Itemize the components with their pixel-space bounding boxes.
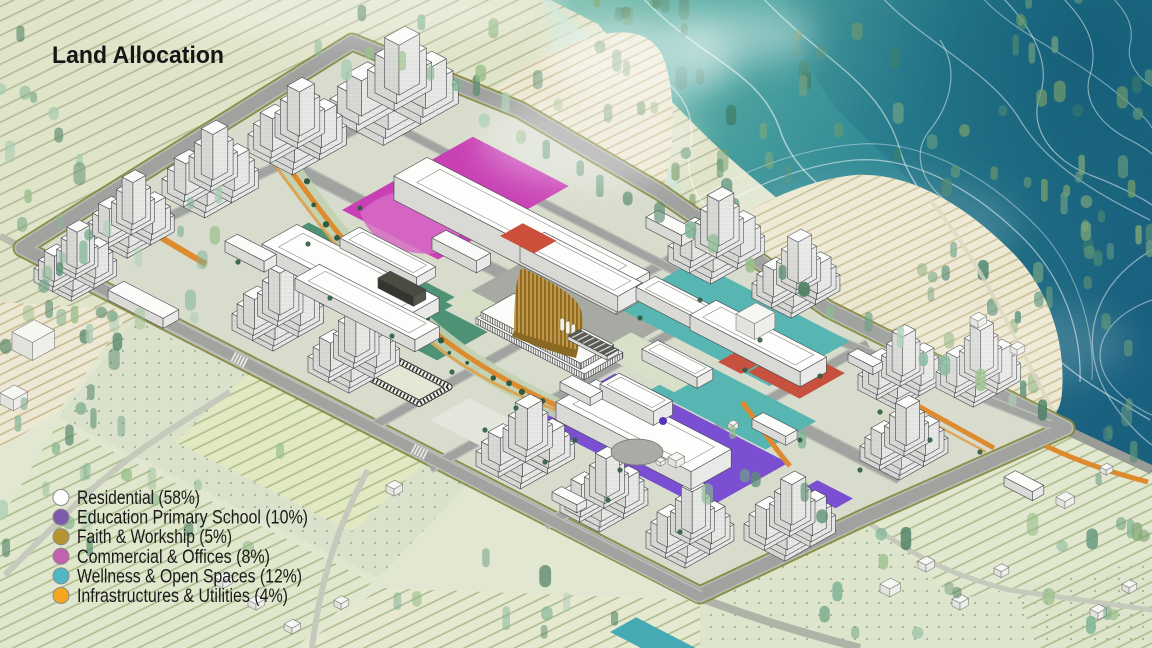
svg-text:Infrastructures & Utilities (4: Infrastructures & Utilities (4%) bbox=[77, 586, 288, 607]
svg-text:Education Primary School (10%): Education Primary School (10%) bbox=[77, 508, 308, 529]
svg-text:Faith & Workship (5%): Faith & Workship (5%) bbox=[77, 527, 232, 548]
svg-text:Land Allocation: Land Allocation bbox=[52, 42, 224, 69]
svg-text:Wellness & Open Spaces (12%): Wellness & Open Spaces (12%) bbox=[77, 566, 302, 587]
svg-text:Commercial & Offices (8%): Commercial & Offices (8%) bbox=[77, 547, 270, 568]
svg-text:Residential (58%): Residential (58%) bbox=[77, 488, 200, 509]
